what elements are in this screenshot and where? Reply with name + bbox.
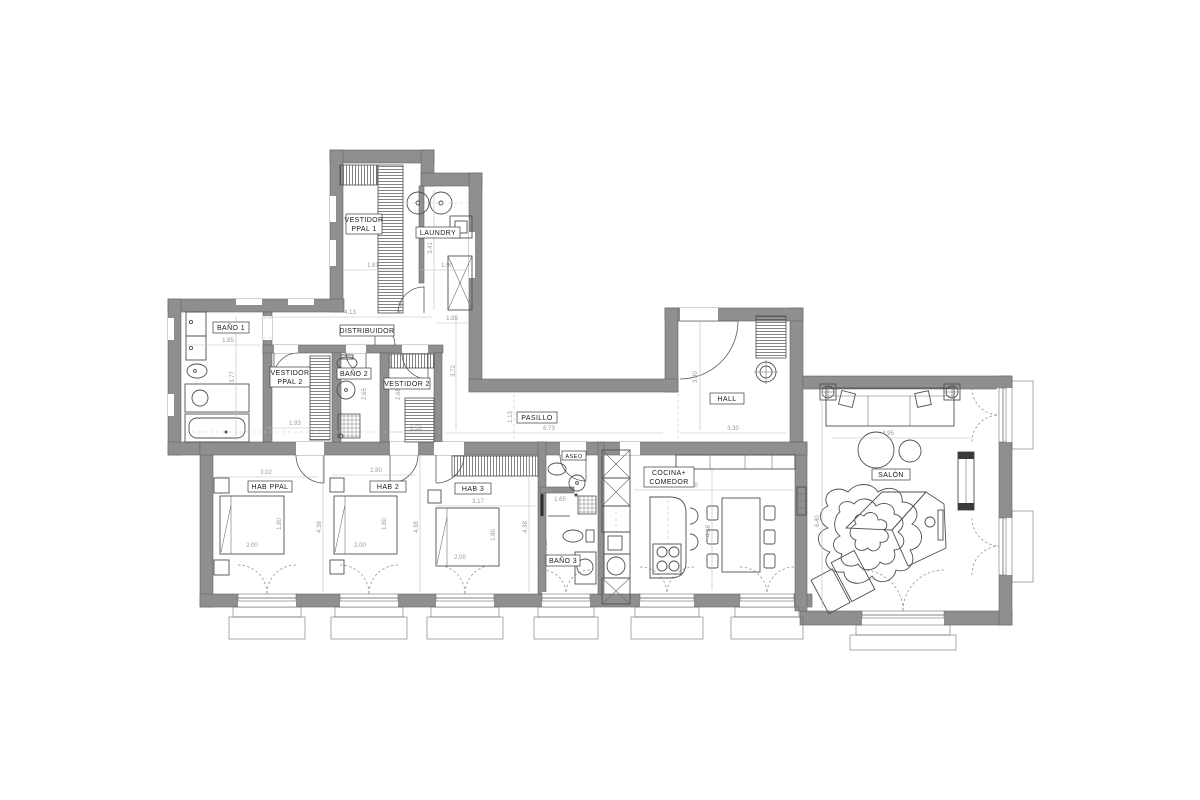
room-label-hab-3: HAB 3	[455, 483, 491, 494]
dimension-label: 2.80	[370, 468, 382, 474]
svg-text:PPAL 2: PPAL 2	[277, 379, 302, 386]
bed-symbol	[214, 478, 284, 575]
dimension-label: 2.00	[354, 543, 366, 549]
room-label-distribuidor: DISTRIBUIDOR	[340, 325, 395, 336]
dimension-label: 4.95	[882, 431, 894, 437]
room-label-vestidor-ppal-2: VESTIDOR PPAL 2	[270, 367, 310, 387]
toilet-symbol	[569, 475, 585, 491]
room-label-bano-3: BAÑO 3	[546, 555, 580, 566]
dimension-label: 3.17	[472, 499, 484, 505]
door-symbol	[680, 321, 738, 379]
svg-text:LAUNDRY: LAUNDRY	[420, 230, 456, 237]
dimension-label: 2.65	[362, 388, 368, 400]
svg-text:BAÑO 3: BAÑO 3	[549, 556, 577, 565]
closet-symbol	[756, 316, 786, 358]
svg-text:COMEDOR: COMEDOR	[649, 479, 688, 486]
svg-text:SALÓN: SALÓN	[878, 470, 904, 479]
dimension-label: 3.77	[230, 371, 236, 383]
door-symbol	[390, 455, 418, 483]
room-label-vestidor-ppal-1: VESTIDOR PPAL 1	[345, 214, 384, 234]
dimension-label: 1.65	[554, 497, 566, 503]
dimension-label: 3.72	[451, 365, 457, 377]
window-symbol	[331, 565, 407, 639]
room-label-cocina-comedor: COCINA+ COMEDOR	[644, 467, 694, 487]
window-symbol	[427, 565, 503, 639]
dimension-label: 2.00	[454, 555, 466, 561]
dimension-label: 4.38	[414, 521, 420, 533]
dimension-label: 1.80	[491, 529, 497, 541]
pillow-symbol	[839, 391, 856, 408]
dimension-label: 3.28	[543, 539, 549, 551]
room-label-vestidor-2: VESTIDOR 2	[384, 378, 430, 389]
svg-text:PASILLO: PASILLO	[521, 415, 553, 422]
svg-text:VESTIDOR: VESTIDOR	[345, 217, 384, 224]
dimension-label: 1.93	[289, 421, 301, 427]
dimension-label: 3.41	[428, 242, 434, 254]
room-label-hall: HALL	[710, 393, 744, 404]
room-label-pasillo: PASILLO	[517, 412, 557, 423]
svg-text:HAB PPAL: HAB PPAL	[252, 484, 289, 491]
dimension-label: 6.40	[815, 515, 821, 527]
dimension-label: 4.38	[706, 525, 712, 537]
dimension-label: 2.68	[396, 388, 402, 400]
svg-text:HAB 3: HAB 3	[462, 486, 484, 493]
room-label-hab-2: HAB 2	[370, 481, 406, 492]
radiator-symbol	[958, 452, 974, 510]
dimension-label: 3.02	[260, 470, 272, 476]
coffee-table-symbol	[858, 432, 894, 468]
shower-symbol	[578, 496, 596, 514]
pillow-symbol	[915, 391, 932, 408]
dimension-label: 6.73	[543, 426, 555, 432]
dimension-label: 1.58	[410, 426, 422, 432]
dimension-label: 1.80	[382, 518, 388, 530]
svg-text:ASEO: ASEO	[565, 454, 582, 460]
dimension-label: 3.30	[727, 426, 739, 432]
dining-table-symbol	[707, 498, 775, 572]
bathtub-symbol	[185, 414, 249, 442]
svg-text:PPAL 1: PPAL 1	[351, 226, 376, 233]
room-label-aseo: ASEO	[562, 451, 586, 460]
coffee-table-symbol	[899, 440, 921, 462]
dimension-label: 1.88	[399, 301, 405, 313]
dimension-label: 2.00	[246, 543, 258, 549]
svg-text:HAB 2: HAB 2	[377, 484, 399, 491]
dimension-label: 1.85	[446, 316, 458, 322]
room-label-bano-2: BAÑO 2	[337, 368, 371, 379]
wardrobe-symbol	[340, 165, 403, 313]
window-symbol	[229, 565, 305, 639]
column-symbol	[754, 360, 778, 384]
dim-lines	[180, 190, 972, 608]
wardrobe-symbol	[310, 356, 330, 440]
svg-text:COCINA+: COCINA+	[652, 470, 686, 477]
sofa-symbol	[826, 388, 954, 426]
svg-text:VESTIDOR: VESTIDOR	[271, 370, 310, 377]
svg-text:BAÑO 2: BAÑO 2	[340, 369, 368, 378]
dimension-label: 4.13	[344, 310, 356, 316]
sink-symbol	[192, 390, 208, 406]
door-symbol	[296, 455, 324, 483]
dimension-label: 4.38	[317, 521, 323, 533]
svg-text:BAÑO 1: BAÑO 1	[217, 323, 245, 332]
stool-symbol	[690, 534, 698, 550]
walls	[168, 150, 1012, 625]
window-symbol	[731, 567, 803, 639]
room-label-laundry: LAUNDRY	[416, 227, 460, 238]
stool-symbol	[690, 508, 698, 524]
dimension-label: 1.81	[367, 263, 379, 269]
svg-text:DISTRIBUIDOR: DISTRIBUIDOR	[340, 328, 395, 335]
svg-text:VESTIDOR 2: VESTIDOR 2	[384, 381, 430, 388]
svg-text:HALL: HALL	[717, 396, 736, 403]
dimension-label: 1.85	[222, 338, 234, 344]
kitchen-units-symbol	[602, 450, 630, 604]
window-symbol	[972, 381, 1033, 449]
room-label-hab-ppal: HAB PPAL	[248, 481, 292, 492]
room-label-salon: SALÓN	[872, 469, 910, 480]
toilet-symbol	[563, 530, 583, 542]
window-symbol	[972, 511, 1033, 582]
wardrobe-symbol	[452, 456, 538, 476]
window-symbol	[850, 570, 956, 650]
floorplan: 1.81 1.90 3.41 1.85 4.13 1.88 1.85 3.77 …	[0, 0, 1200, 800]
sink-symbol	[548, 463, 566, 475]
dimension-label: 1.13	[508, 411, 514, 423]
dimension-label: 1.90	[441, 263, 453, 269]
dimension-label: 4.38	[523, 521, 529, 533]
desk-symbol	[846, 492, 946, 566]
dimension-label: 3.40	[693, 371, 699, 383]
dimension-label: 1.80	[277, 518, 283, 530]
room-label-bano-1: BAÑO 1	[213, 322, 249, 333]
kitchen-island-symbol	[650, 497, 698, 578]
sink-symbol	[187, 364, 207, 378]
